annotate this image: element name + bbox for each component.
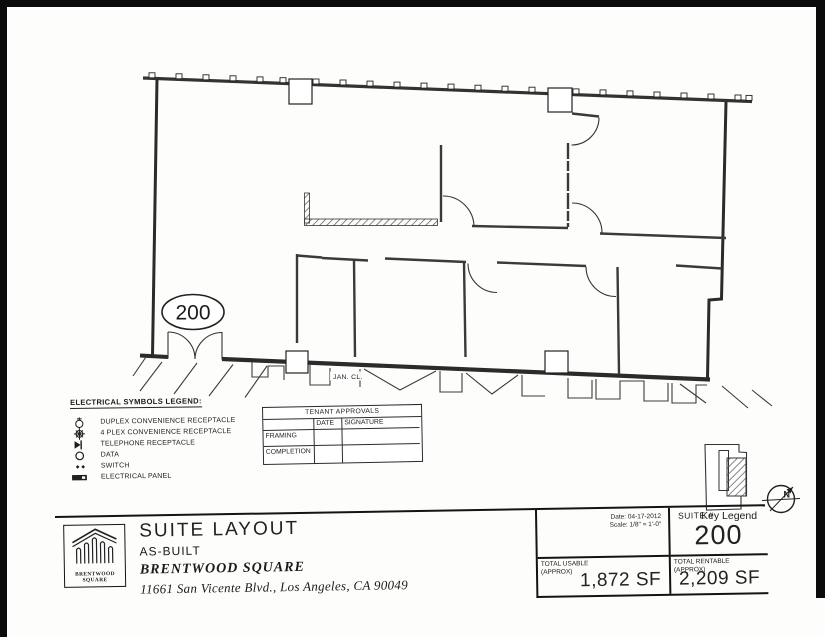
rentable-label-text: TOTAL RENTABLE (674, 558, 730, 566)
window-mullion-ticks (149, 73, 752, 101)
legend-item-label: DATA (101, 451, 120, 458)
north-compass: N (762, 486, 800, 513)
suite-number-bubble-label: 200 (175, 302, 210, 325)
usable-label-text: TOTAL USABLE (541, 560, 589, 568)
electrical-panel-icon (71, 471, 89, 483)
framing-signature-cell (341, 428, 419, 445)
title-block-main: SUITE LAYOUT AS-BUILT BRENTWOOD SQUARE 1… (139, 516, 408, 597)
tenant-approvals-table: TENANT APPROVALS DATE SIGNATURE FRAMING … (262, 404, 423, 465)
property-address: 11661 San Vicente Blvd., Los Angeles, CA… (140, 577, 408, 597)
suite-entry-double-door (168, 332, 222, 360)
brentwood-square-logo: BRENTWOOD SQUARE (63, 524, 126, 588)
electrical-symbols-legend: ELECTRICAL SYMBOLS LEGEND: DUPLEX CONVEN… (70, 396, 236, 483)
logo-building-icon (66, 525, 123, 566)
key-legend-suite-highlight (727, 458, 746, 496)
row-label-completion: COMPLETION (264, 446, 314, 464)
scanned-suite-layout-page: 200 JAN. CL. Key Legend N (0, 0, 825, 637)
title-block: BRENTWOOD SQUARE SUITE LAYOUT AS-BUILT B… (55, 504, 767, 613)
total-usable-cell: TOTAL USABLE (APPROX) 1,872 SF (538, 555, 672, 596)
sheet-title: SUITE LAYOUT (139, 516, 407, 542)
suite-number-bubble: 200 (162, 295, 224, 330)
exterior-walls (140, 79, 726, 380)
header-cell-date: DATE (313, 418, 341, 430)
legend-item-label: TELEPHONE RECEPTACLE (101, 439, 196, 447)
north-label: N (784, 490, 791, 500)
row-label-framing: FRAMING (263, 430, 313, 447)
property-name: BRENTWOOD SQUARE (140, 558, 408, 578)
interior-walls (297, 114, 726, 375)
framing-date-cell (313, 429, 341, 446)
legend-item-label: ELECTRICAL PANEL (101, 473, 172, 481)
total-usable-value: 1,872 SF (580, 569, 661, 592)
legend-item: ELECTRICAL PANEL (71, 470, 236, 483)
total-rentable-value: 2,209 SF (679, 567, 760, 590)
legend-item-label: 4 PLEX CONVENIENCE RECEPTACLE (100, 428, 231, 437)
usable-approx-text: (APPROX) (541, 568, 573, 576)
jan-closet-label: JAN. CL. (333, 374, 363, 381)
suite-number-value: 200 (694, 519, 768, 551)
hatched-wall-horizontal (305, 219, 438, 226)
suite-number-cell: SUITE # 200 (670, 506, 768, 555)
hatched-wall-vertical (305, 193, 310, 223)
door-swings (168, 118, 616, 360)
legend-item-label: SWITCH (101, 462, 130, 469)
window-wall-north (143, 73, 752, 102)
completion-signature-cell (342, 444, 420, 462)
legend-item-label: DUPLEX CONVENIENCE RECEPTACLE (100, 417, 235, 426)
total-rentable-cell: TOTAL RENTABLE (APPROX) 2,209 SF (671, 553, 769, 594)
completion-date-cell (314, 445, 342, 463)
title-block-data-grid: Date: 04-17-2012 Scale: 1/8" = 1'-0" SUI… (535, 506, 768, 598)
electrical-legend-title: ELECTRICAL SYMBOLS LEGEND: (70, 396, 202, 409)
logo-text-line2: SQUARE (65, 577, 125, 584)
table-row: COMPLETION (264, 444, 422, 464)
drawing-scale: Scale: 1/8" = 1'-0" (537, 521, 661, 531)
sheet-subtitle: AS-BUILT (139, 540, 407, 558)
date-scale-cell: Date: 04-17-2012 Scale: 1/8" = 1'-0" (537, 508, 671, 557)
jan-closet: JAN. CL. (330, 372, 363, 382)
